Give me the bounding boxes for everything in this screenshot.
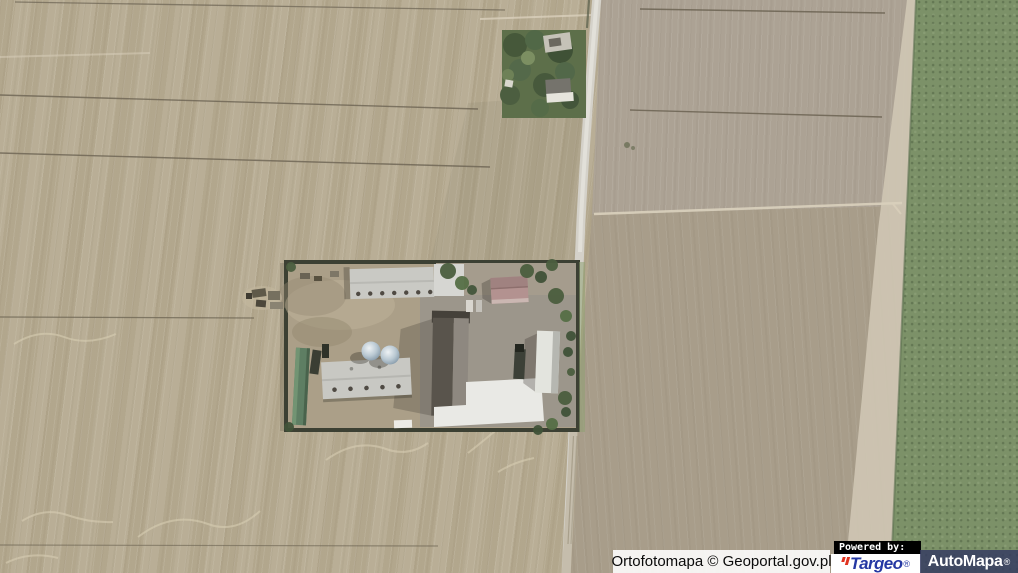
crop-edge-line	[891, 0, 916, 573]
targeo-registered-mark: ®	[903, 560, 910, 568]
automapa-logo[interactable]: AutoMapa ®	[920, 550, 1018, 573]
map-viewport[interactable]: Ortofotomapa © Geoportal.gov.pl Powered …	[0, 0, 1018, 573]
powered-by-label: Powered by:	[834, 541, 921, 554]
farm-complex	[242, 259, 585, 435]
homestead-shed	[504, 79, 513, 87]
targeo-logo[interactable]: Targeo ®	[831, 554, 921, 573]
targeo-wordmark: Targeo	[850, 555, 902, 572]
barn-south	[321, 358, 412, 403]
east-outbuilding	[523, 330, 560, 393]
wooded-homestead	[500, 30, 586, 118]
farmhouse	[481, 276, 528, 304]
homestead-house	[545, 78, 574, 103]
aerial-photo-detail	[0, 0, 1018, 573]
attribution-text: Ortofotomapa © Geoportal.gov.pl	[611, 553, 831, 570]
barn-north	[344, 265, 435, 299]
targeo-mark-icon	[842, 557, 849, 565]
field-tone-patch	[430, 94, 594, 263]
automapa-registered-mark: ®	[1004, 558, 1011, 566]
automapa-wordmark: AutoMapa	[928, 553, 1003, 571]
attribution: Ortofotomapa © Geoportal.gov.pl	[613, 550, 830, 573]
